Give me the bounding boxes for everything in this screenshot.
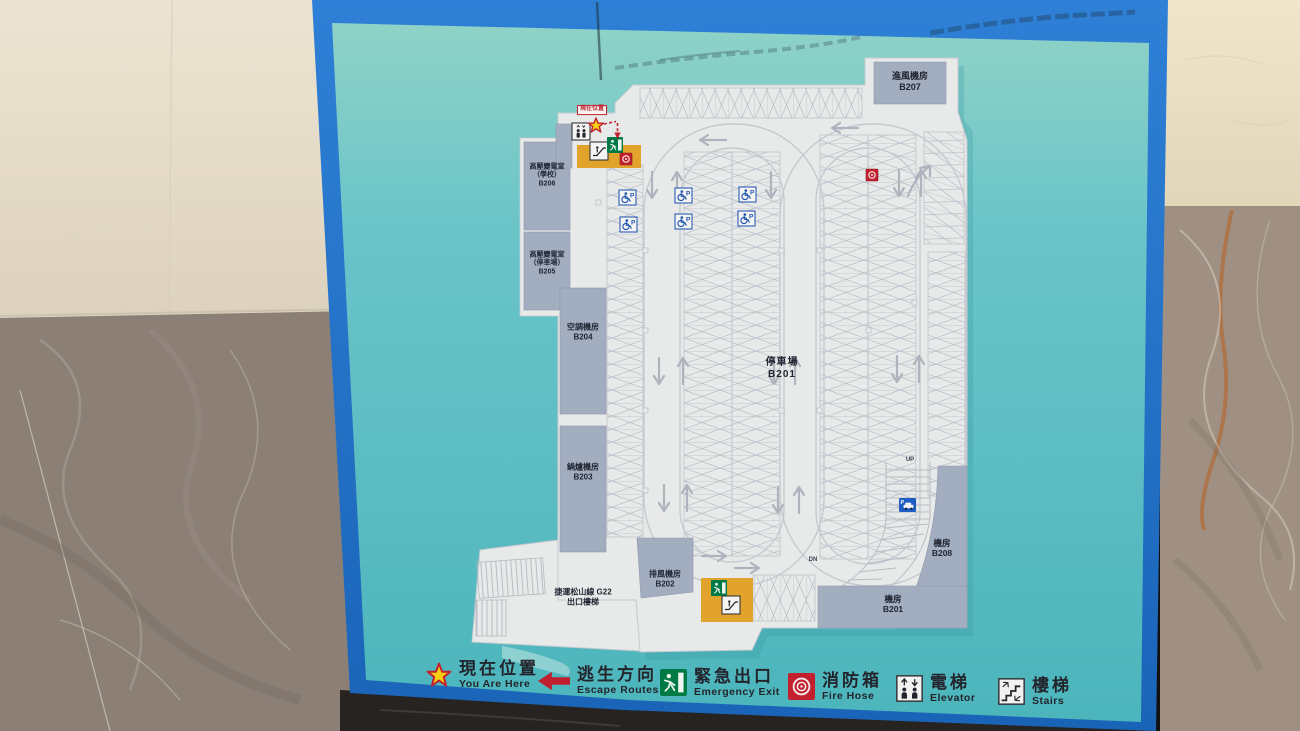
legend-zh: 消防箱 bbox=[822, 672, 882, 690]
mrt-exit-label: 捷運松山線 G22 出口樓梯 bbox=[554, 587, 611, 606]
legend-en: Stairs bbox=[1032, 695, 1072, 707]
room-sub: （停車場） bbox=[530, 260, 565, 268]
legend-zh: 逃生方向 bbox=[577, 666, 659, 684]
mrt-line: 捷運松山線 G22 bbox=[554, 587, 611, 597]
exit-map-icon-bottom bbox=[711, 580, 727, 596]
room-code: B205 bbox=[530, 268, 565, 276]
ramp-dn-label: DN bbox=[809, 557, 818, 563]
room-name: 空調機房 bbox=[567, 322, 599, 332]
room-name: 進風機房 bbox=[892, 71, 928, 82]
legend-en: You Are Here bbox=[459, 678, 539, 690]
photo-of-parking-floorplan-sign: P bbox=[0, 0, 1300, 731]
room-code: B202 bbox=[649, 579, 681, 589]
elevator-map-icon bbox=[572, 123, 590, 140]
room-label-b203: 鍋爐機房 B203 bbox=[567, 462, 599, 481]
legend-en: Fire Hose bbox=[822, 690, 882, 702]
parking-area-label: 停車場 B201 bbox=[766, 357, 799, 381]
legend-en: Emergency Exit bbox=[694, 686, 780, 698]
room-label-b202: 排風機房 B202 bbox=[649, 569, 681, 588]
room-b203 bbox=[560, 426, 606, 552]
exit-map-icon-top bbox=[607, 137, 623, 153]
wall-left bbox=[0, 0, 352, 731]
room-b204 bbox=[560, 288, 606, 414]
legend-en: Elevator bbox=[930, 692, 975, 704]
lobby-gray bbox=[556, 124, 572, 168]
legend-zh: 現在位置 bbox=[459, 660, 539, 678]
star-icon bbox=[426, 662, 452, 688]
legend-en: Escape Routes bbox=[577, 684, 659, 696]
fire-hose-map-icon-right bbox=[866, 169, 878, 181]
legend-zh: 緊急出口 bbox=[694, 668, 780, 686]
room-code: B201 bbox=[883, 604, 903, 614]
room-label-b201: 機房 B201 bbox=[883, 594, 903, 614]
room-name: 鍋爐機房 bbox=[567, 462, 599, 472]
room-b202 bbox=[637, 538, 693, 598]
legend-zh: 電梯 bbox=[930, 674, 975, 692]
scene-graphics: P bbox=[0, 0, 1300, 731]
room-code: B207 bbox=[892, 82, 928, 93]
arrow-left-icon bbox=[538, 671, 570, 691]
room-name: 機房 bbox=[932, 538, 952, 548]
legend-item-elevator: 電梯 Elevator bbox=[896, 674, 975, 704]
room-code: B203 bbox=[567, 472, 599, 482]
stairs-icon bbox=[998, 678, 1025, 705]
legend-item-stairs: 樓梯 Stairs bbox=[998, 677, 1072, 707]
room-label-b206: 高壓變電室 （學校） B206 bbox=[530, 163, 565, 188]
room-label-b208: 機房 B208 bbox=[932, 538, 952, 558]
room-name: 停車場 bbox=[766, 357, 799, 369]
legend-item-emergency-exit: 緊急出口 Emergency Exit bbox=[660, 668, 780, 698]
legend-item-you-are-here: 現在位置 You Are Here bbox=[426, 660, 539, 690]
legend-item-escape-routes: 逃生方向 Escape Routes bbox=[538, 666, 659, 696]
room-name: 機房 bbox=[883, 594, 903, 604]
car-lift-icon: P bbox=[899, 498, 916, 512]
room-sub: （學校） bbox=[530, 172, 565, 180]
ramp-up-label: UP bbox=[906, 457, 914, 463]
room-code: B204 bbox=[567, 332, 599, 342]
legend-item-fire-hose: 消防箱 Fire Hose bbox=[788, 672, 882, 702]
room-label-b204: 空調機房 B204 bbox=[567, 322, 599, 341]
escalator-map-icon-bottom bbox=[722, 596, 740, 614]
mrt-exit: 出口樓梯 bbox=[554, 597, 611, 607]
escalator-map-icon-top bbox=[590, 142, 608, 160]
wall-right bbox=[1160, 0, 1300, 731]
legend-zh: 樓梯 bbox=[1032, 677, 1072, 695]
fire-hose-icon bbox=[788, 673, 815, 700]
room-code: B201 bbox=[766, 369, 799, 381]
exit-icon bbox=[660, 669, 687, 696]
room-label-b207: 進風機房 B207 bbox=[892, 71, 928, 93]
svg-text:P: P bbox=[901, 500, 905, 506]
room-name: 排風機房 bbox=[649, 569, 681, 579]
you-are-here-tag: 現在位置 bbox=[577, 105, 607, 115]
elevator-icon bbox=[896, 675, 923, 702]
room-code: B206 bbox=[530, 180, 565, 188]
fire-hose-map-icon-left bbox=[620, 153, 632, 165]
room-code: B208 bbox=[932, 548, 952, 558]
room-label-b205: 高壓變電室 （停車場） B205 bbox=[530, 251, 565, 276]
